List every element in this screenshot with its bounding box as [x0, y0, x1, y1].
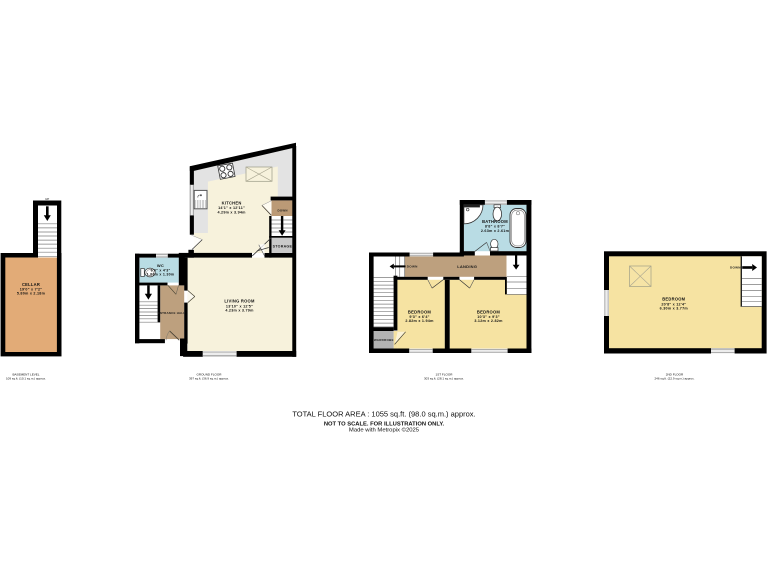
- svg-text:6.30m x 3.77m: 6.30m x 3.77m: [660, 307, 689, 311]
- svg-text:BEDROOM: BEDROOM: [477, 309, 500, 314]
- svg-text:3.12m x 2.82m: 3.12m x 2.82m: [474, 319, 503, 323]
- svg-text:246 sq.ft. (22.9 sq.m.) approx: 246 sq.ft. (22.9 sq.m.) approx.: [654, 376, 694, 380]
- svg-text:ENTRANCE HALL: ENTRANCE HALL: [158, 311, 186, 315]
- svg-text:Made with Metropix ©2025: Made with Metropix ©2025: [349, 427, 420, 434]
- svg-text:DOWN: DOWN: [278, 208, 288, 212]
- svg-text:DOWN: DOWN: [407, 265, 418, 269]
- svg-text:LANDING: LANDING: [457, 264, 477, 269]
- svg-text:BEDROOM: BEDROOM: [408, 309, 431, 314]
- svg-text:2.63m x 2.61m: 2.63m x 2.61m: [481, 229, 510, 233]
- svg-text:BEDROOM: BEDROOM: [662, 297, 685, 302]
- svg-text:4.23m x 3.79m: 4.23m x 3.79m: [225, 309, 254, 313]
- svg-text:1.83m x 1.30m: 1.83m x 1.30m: [147, 273, 175, 277]
- svg-text:5.80m x 2.18m: 5.80m x 2.18m: [17, 292, 46, 296]
- svg-text:UP: UP: [45, 197, 49, 201]
- svg-text:397 sq.ft. (36.9 sq.m.) approx: 397 sq.ft. (36.9 sq.m.) approx.: [189, 376, 229, 380]
- svg-text:DOWN: DOWN: [730, 266, 741, 270]
- svg-text:CELLAR: CELLAR: [22, 282, 40, 287]
- svg-text:STORAGE: STORAGE: [273, 245, 293, 249]
- svg-text:4.29m x 3.94m: 4.29m x 3.94m: [217, 210, 246, 214]
- svg-text:WARDROBE: WARDROBE: [374, 338, 394, 342]
- svg-text:NOT TO SCALE. FOR ILLUSTRATION: NOT TO SCALE. FOR ILLUSTRATION ONLY.: [324, 421, 445, 427]
- svg-text:WC: WC: [157, 263, 164, 268]
- svg-text:TOTAL FLOOR AREA : 1055 sq.ft.: TOTAL FLOOR AREA : 1055 sq.ft. (98.0 sq.…: [292, 409, 475, 418]
- svg-text:KITCHEN: KITCHEN: [222, 200, 242, 205]
- svg-text:303 sq.ft. (28.1 sq.m.) approx: 303 sq.ft. (28.1 sq.m.) approx.: [424, 376, 464, 380]
- svg-text:2.82m x 1.94m: 2.82m x 1.94m: [405, 319, 434, 323]
- svg-text:109 sq.ft. (10.1 sq.m.) approx: 109 sq.ft. (10.1 sq.m.) approx.: [6, 376, 46, 380]
- svg-text:BATHROOM: BATHROOM: [482, 219, 508, 224]
- svg-text:LIVING ROOM: LIVING ROOM: [224, 299, 255, 304]
